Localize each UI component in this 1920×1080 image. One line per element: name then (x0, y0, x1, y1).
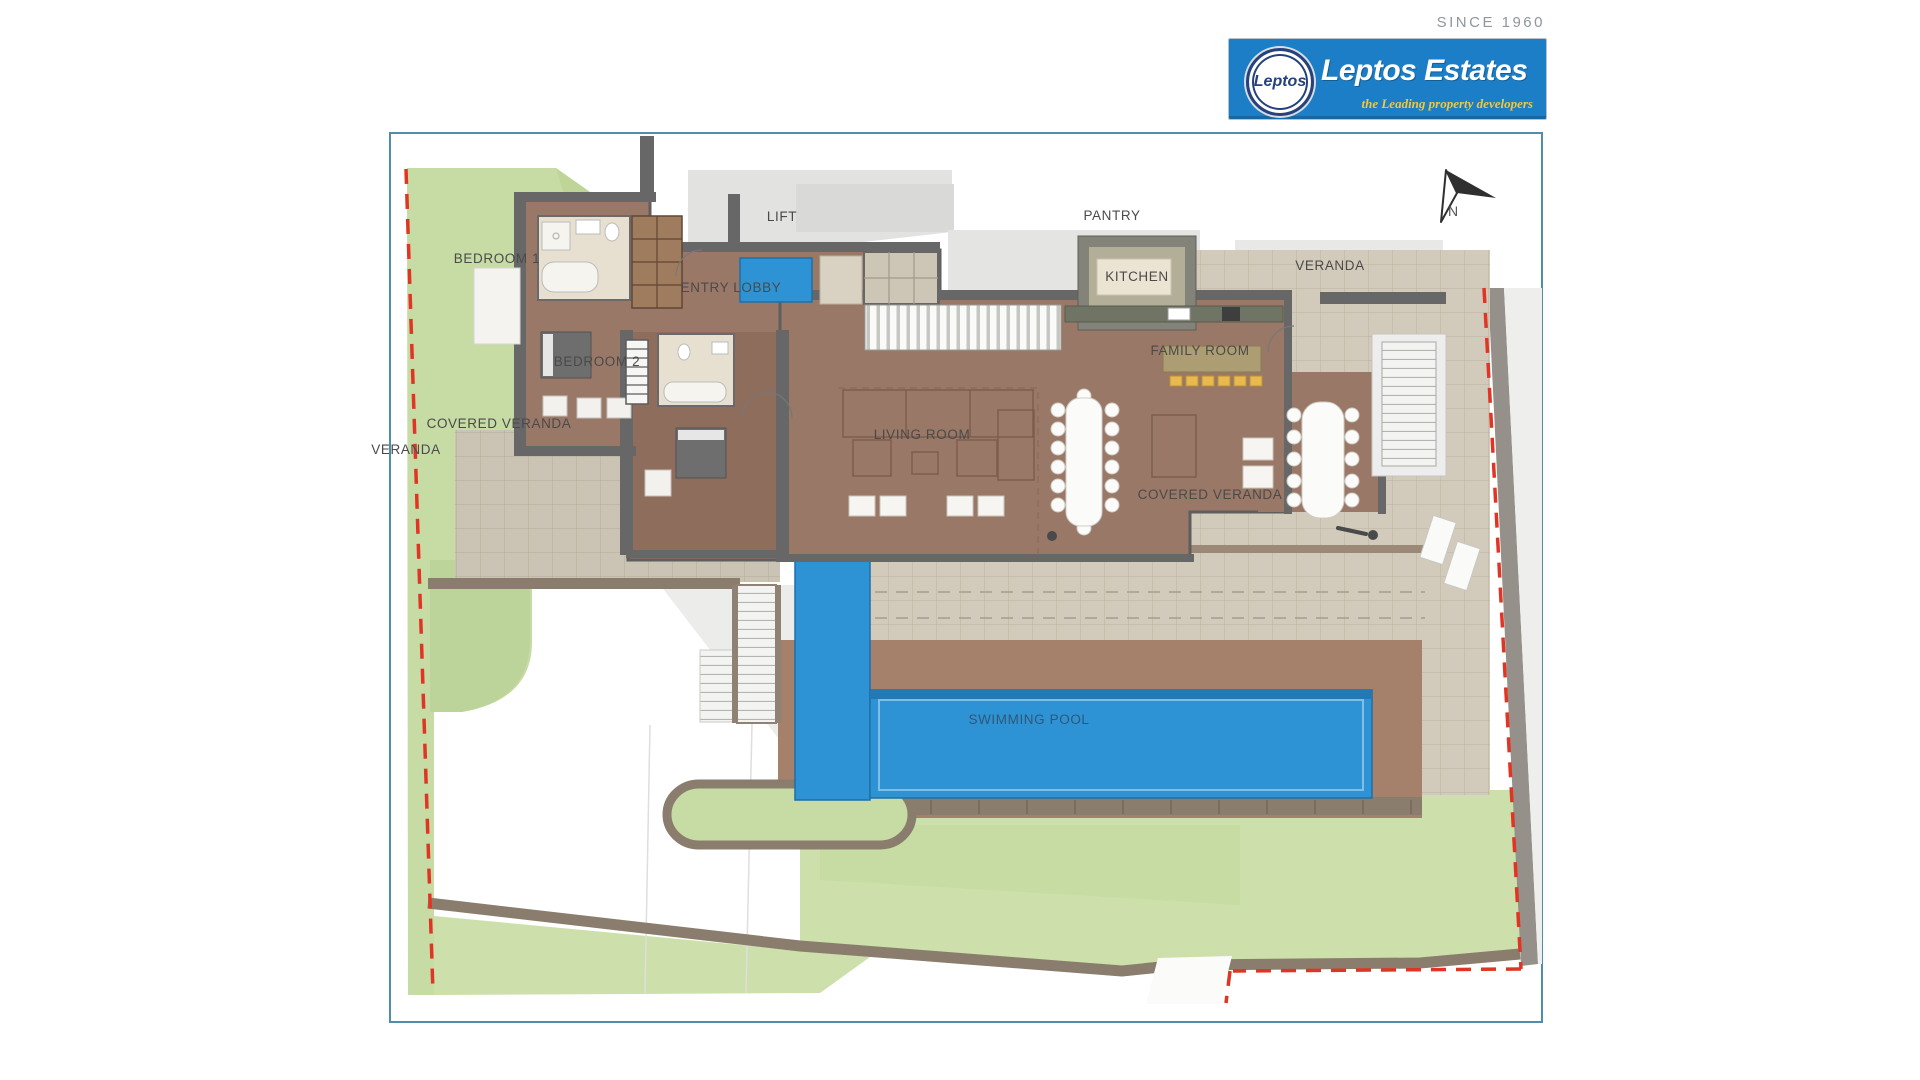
pergola-louvers (865, 305, 1061, 350)
stairs-internal (626, 340, 648, 404)
page: SINCE 1960 Leptos Leptos Estates the Lea… (0, 0, 1920, 1080)
room-label-lift: LIFT (767, 209, 797, 224)
room-label-veranda-left: VERANDA (371, 442, 440, 457)
room-label-living-room: LIVING ROOM (874, 427, 971, 442)
stairs-main (737, 585, 776, 723)
room-label-covered-veranda-right: COVERED VERANDA (1138, 487, 1283, 502)
room-label-bedroom-2: BEDROOM 2 (554, 354, 640, 369)
room-label-pantry: PANTRY (1083, 208, 1140, 223)
pool-main (870, 690, 1372, 798)
room-label-kitchen: KITCHEN (1105, 269, 1168, 284)
room-label-veranda-top: VERANDA (1295, 258, 1364, 273)
closets (632, 216, 682, 308)
entry-mat (820, 256, 862, 304)
bathroom-1 (538, 216, 630, 300)
room-label-entry-lobby: ENTRY LOBBY (681, 280, 782, 295)
bed-outdoor (474, 268, 520, 344)
outdoor-dining (1287, 402, 1359, 518)
site-plan-svg: N BEDROOM 1LIFTENTRY LOBBYPANTRYKITCHENV… (0, 0, 1920, 1080)
room-label-covered-veranda-left: COVERED VERANDA (427, 416, 572, 431)
north-label: N (1448, 203, 1458, 219)
room-label-swimming-pool: SWIMMING POOL (968, 712, 1089, 727)
bathroom-2 (658, 334, 734, 406)
footpath (1146, 956, 1232, 1004)
room-label-bedroom-1: BEDROOM 1 (454, 251, 540, 266)
room-label-family-room: FAMILY ROOM (1150, 343, 1249, 358)
stairs-right (1382, 342, 1436, 466)
